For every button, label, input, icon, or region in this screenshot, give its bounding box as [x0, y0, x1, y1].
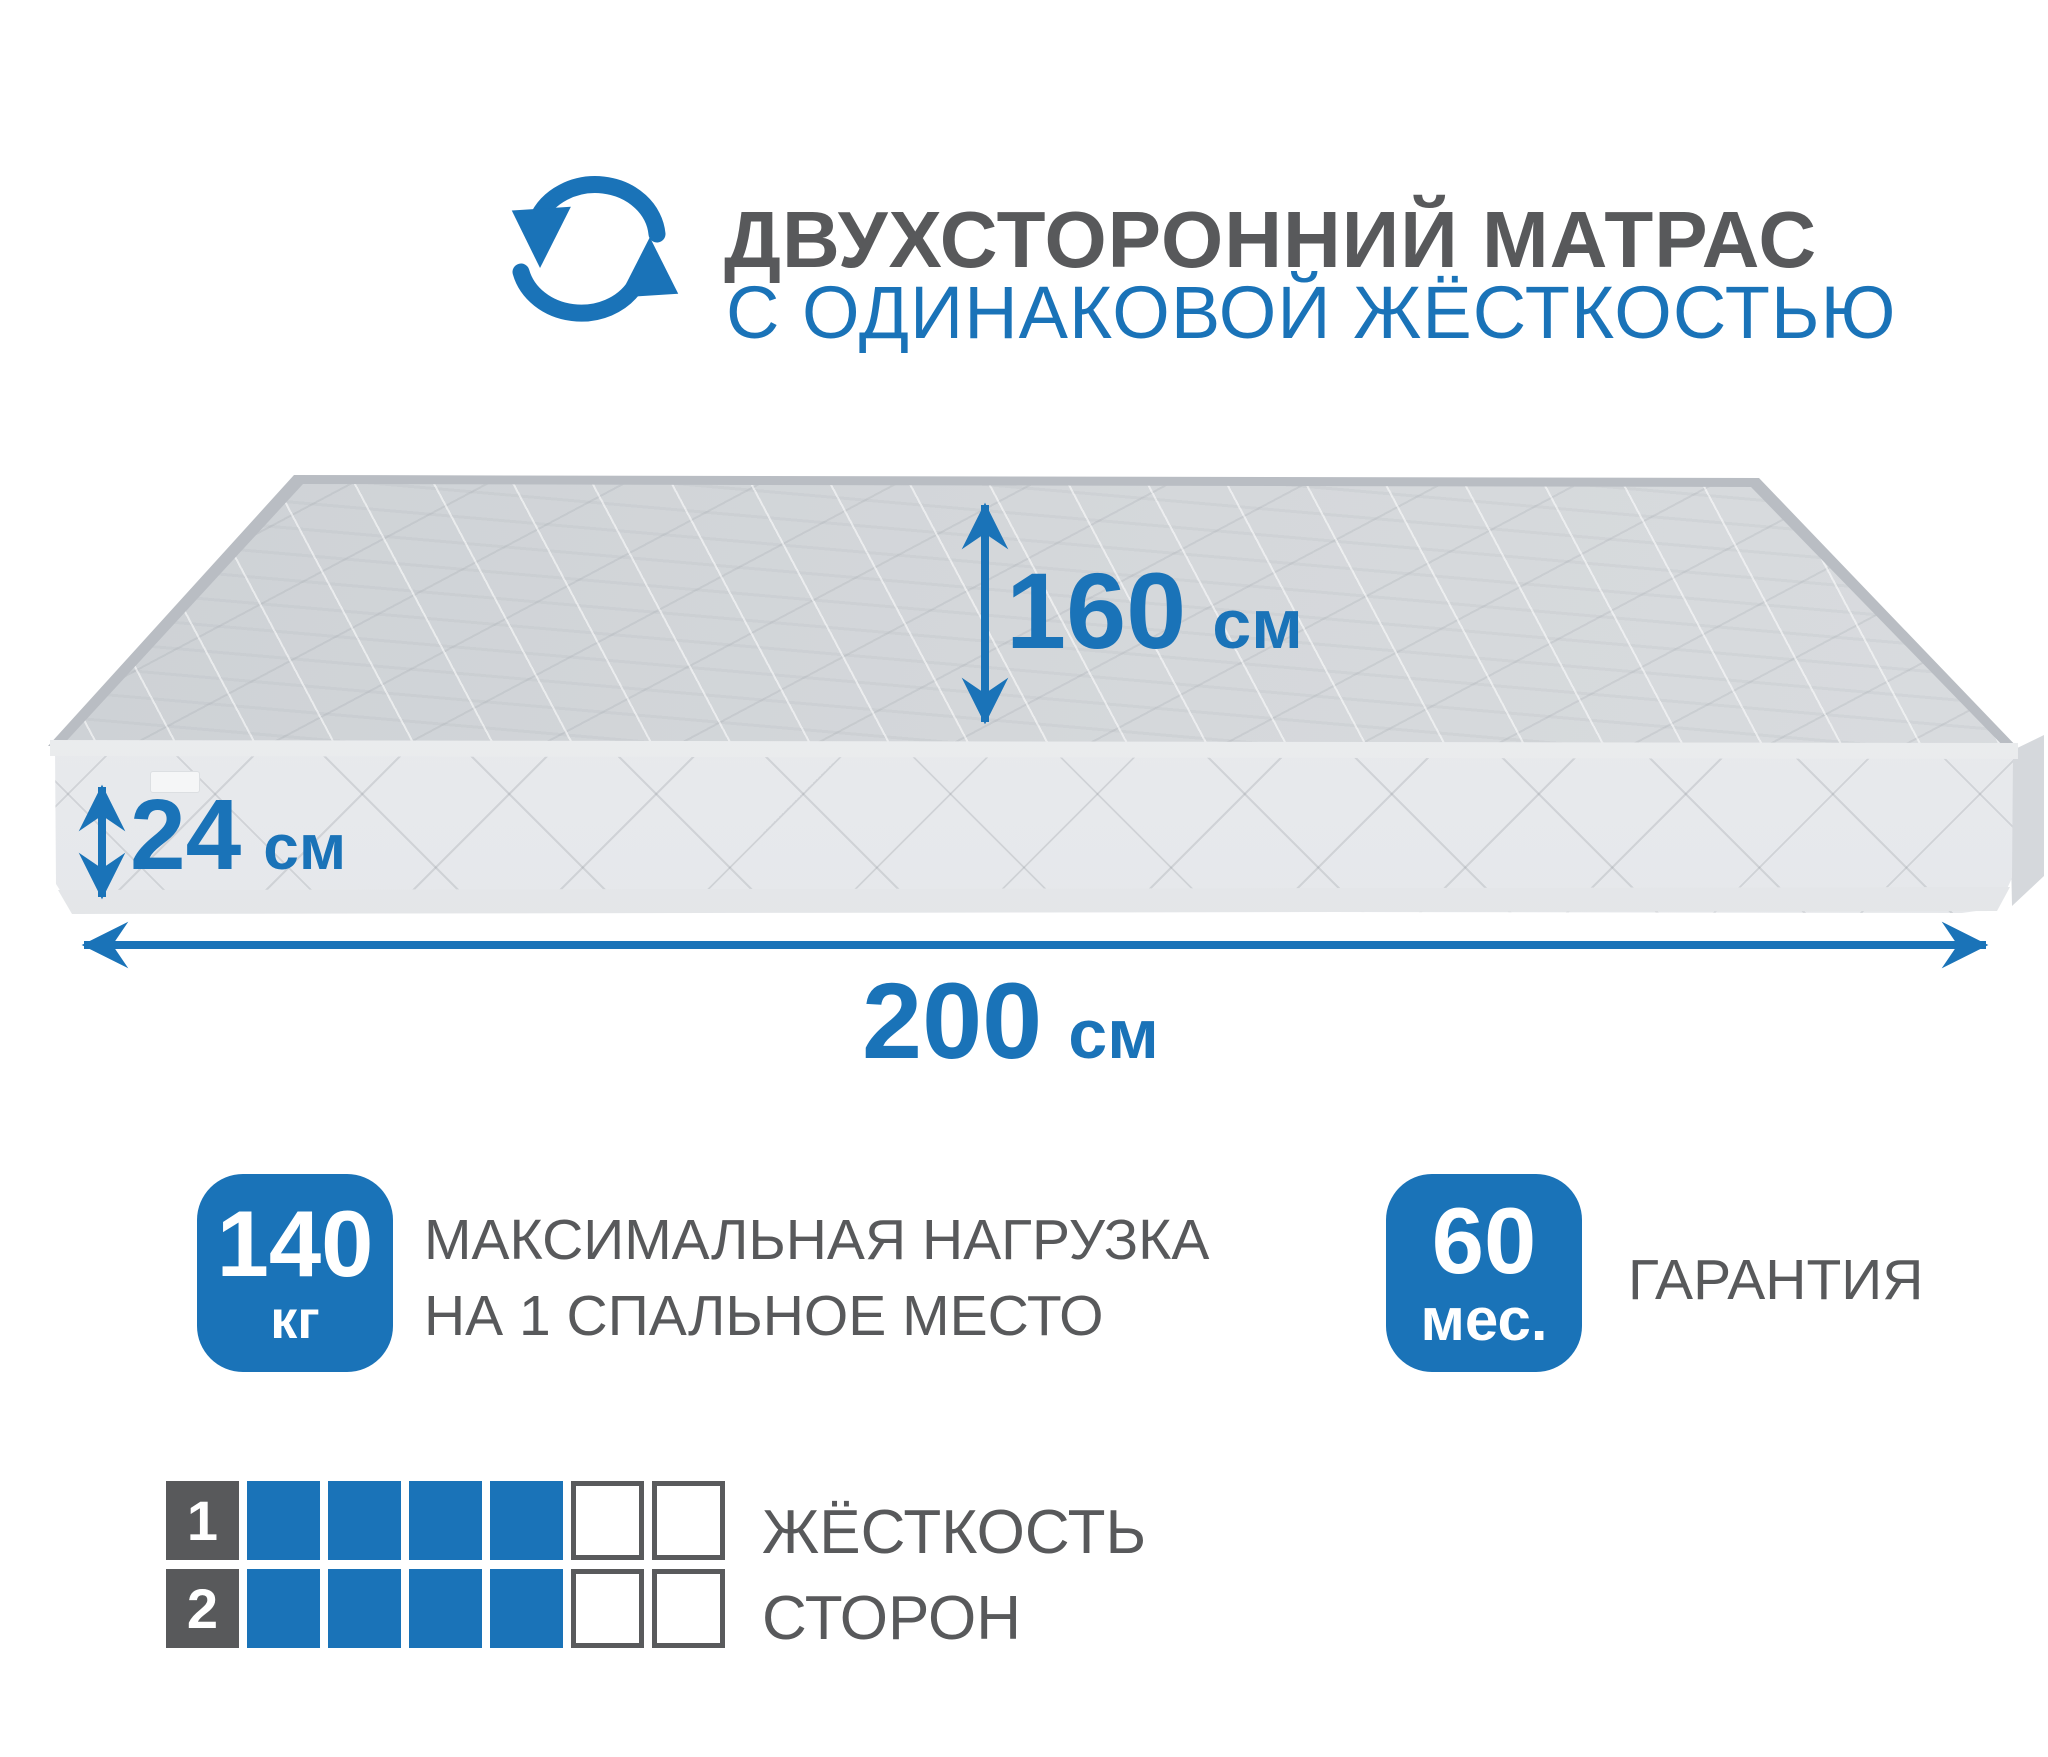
max-load-value: 140 [217, 1199, 374, 1288]
height-value: 24 [130, 778, 241, 893]
firmness-cell-filled [247, 1481, 320, 1560]
warranty-value: 60 [1432, 1196, 1537, 1285]
firmness-cell-filled [409, 1481, 482, 1560]
firmness-cell-empty [571, 1481, 644, 1560]
max-load-unit: кг [270, 1293, 320, 1347]
dimension-label-width: 160 см [1006, 548, 1303, 673]
warranty-caption: ГАРАНТИЯ [1628, 1242, 1923, 1318]
infographic-canvas: ДВУХСТОРОННИЙ МАТРАС С ОДИНАКОВОЙ ЖЁСТКО… [0, 0, 2048, 1757]
firmness-cell-filled [490, 1569, 563, 1648]
firmness-row: 2 [166, 1569, 725, 1648]
max-load-caption-line1: МАКСИМАЛЬНАЯ НАГРУЗКА [424, 1202, 1209, 1278]
firmness-cell-filled [247, 1569, 320, 1648]
dimension-label-length: 200 см [862, 958, 1159, 1083]
warranty-unit: мес. [1420, 1290, 1547, 1350]
dimension-label-height: 24 см [130, 778, 346, 893]
max-load-badge: 140 кг [197, 1174, 393, 1372]
firmness-caption-line1: ЖЁСТКОСТЬ [762, 1490, 1146, 1576]
firmness-cell-filled [490, 1481, 563, 1560]
width-value: 160 [1006, 548, 1186, 673]
firmness-caption-line2: СТОРОН [762, 1576, 1146, 1662]
firmness-cell-filled [328, 1569, 401, 1648]
max-load-caption: МАКСИМАЛЬНАЯ НАГРУЗКА НА 1 СПАЛЬНОЕ МЕСТ… [424, 1202, 1209, 1354]
page-subtitle: С ОДИНАКОВОЙ ЖЁСТКОСТЬЮ [726, 270, 1896, 355]
max-load-caption-line2: НА 1 СПАЛЬНОЕ МЕСТО [424, 1278, 1209, 1354]
length-value: 200 [862, 958, 1042, 1083]
firmness-row-number: 1 [166, 1481, 239, 1560]
firmness-row: 1 [166, 1481, 725, 1560]
warranty-badge: 60 мес. [1386, 1174, 1582, 1372]
height-unit: см [263, 810, 346, 884]
firmness-caption: ЖЁСТКОСТЬ СТОРОН [762, 1490, 1146, 1662]
firmness-cell-empty [652, 1481, 725, 1560]
width-unit: см [1212, 584, 1303, 664]
firmness-cell-filled [409, 1569, 482, 1648]
length-unit: см [1068, 994, 1159, 1074]
firmness-row-number: 2 [166, 1569, 239, 1648]
rotate-arrows-icon [505, 172, 685, 332]
firmness-cell-empty [571, 1569, 644, 1648]
firmness-cell-filled [328, 1481, 401, 1560]
firmness-scale-rows: 12 [166, 1481, 725, 1648]
firmness-cell-empty [652, 1569, 725, 1648]
